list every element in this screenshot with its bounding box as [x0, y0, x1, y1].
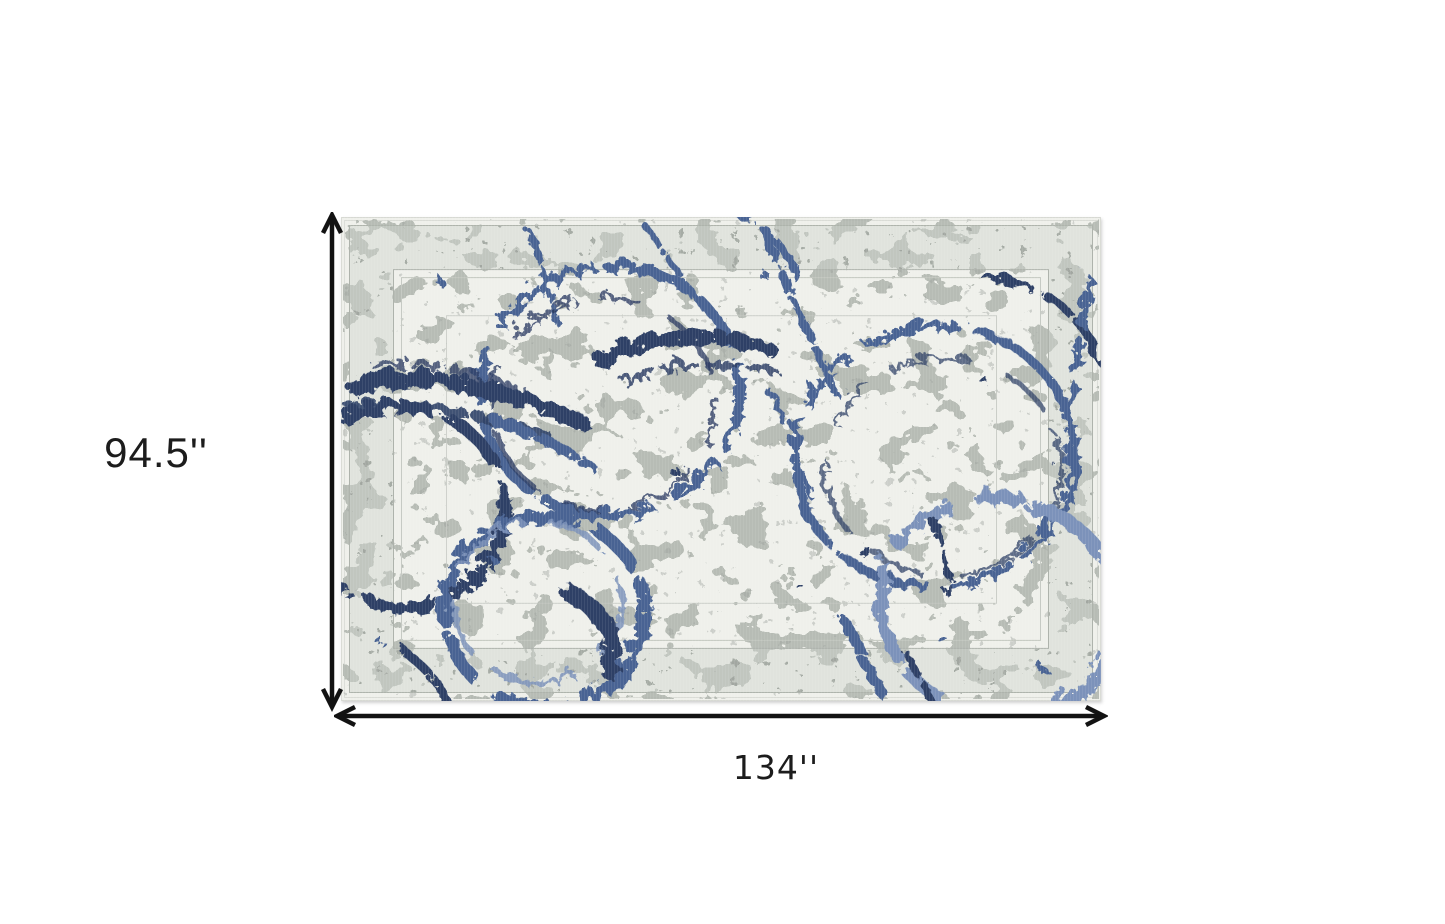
product-dimension-diagram: 94.5'' 134'': [0, 0, 1445, 924]
height-arrow-icon: [319, 212, 345, 712]
width-dimension-label: 134'': [696, 751, 856, 784]
rug-image: [341, 217, 1101, 701]
rug-artwork: [341, 217, 1101, 701]
width-arrow-icon: [334, 703, 1108, 729]
height-dimension-label: 94.5'': [76, 432, 236, 474]
